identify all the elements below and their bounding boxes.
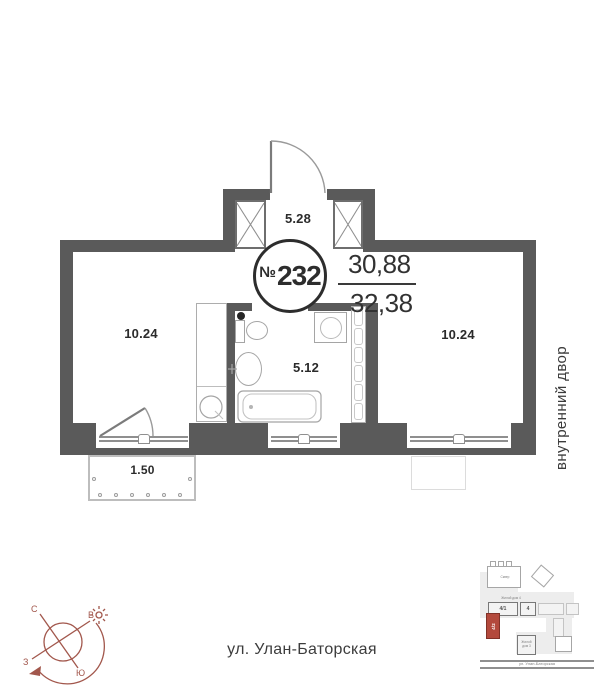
minimap-highlight-block: 4/2 — [486, 613, 500, 639]
unit-number-badge: № 232 — [253, 239, 327, 313]
wall-bottom-2 — [189, 423, 268, 455]
balcony-door-leaf-icon — [100, 408, 145, 436]
bathtub-drain-icon — [249, 405, 253, 409]
railing-dot — [146, 493, 150, 497]
pipe-riser-icon — [237, 312, 245, 320]
wall-bottom-3 — [340, 423, 407, 455]
living-area-value: 30,88 — [338, 249, 417, 283]
minimap-building-unit — [498, 561, 504, 567]
wall-bottom-4 — [511, 423, 536, 455]
railing-dot — [92, 477, 96, 481]
vent-shaft-cross-icon — [335, 202, 361, 247]
kitchen-counter — [196, 303, 227, 422]
wall-under-window-left — [96, 448, 189, 455]
window-middle — [271, 436, 337, 442]
shelf-segment — [354, 328, 363, 345]
compass-arrowhead-icon — [29, 666, 41, 676]
unit-number: 232 — [277, 260, 321, 292]
courtyard-label: внутренний двор — [553, 328, 573, 488]
minimap-block-faint — [538, 603, 564, 615]
shelf-segment — [354, 384, 363, 401]
compass-south-label: Ю — [76, 668, 85, 678]
minimap-block-faint — [566, 603, 579, 615]
railing-dot — [162, 493, 166, 497]
counter-divider — [197, 386, 226, 387]
window-handle-icon — [298, 434, 310, 444]
vent-shaft-cross-icon — [237, 202, 264, 247]
washing-machine-drum-icon — [320, 317, 342, 339]
compass-rose: С В З Ю — [15, 582, 120, 687]
bathroom-area-label: 5.12 — [281, 360, 331, 375]
hall-area-label: 5.28 — [268, 211, 328, 226]
vent-shaft-right — [333, 200, 363, 249]
minimap-house3-block: Жилой дом 3 — [517, 635, 536, 655]
minimap-block-4: 4 — [520, 602, 536, 616]
minimap-building-unit — [506, 561, 512, 567]
railing-dot — [188, 477, 192, 481]
window-right — [410, 436, 508, 442]
toilet-bowl-icon — [246, 321, 268, 340]
toilet-tank-icon — [235, 320, 245, 343]
minimap-block-faint — [553, 618, 564, 637]
minimap-house3-line2: дом 3 — [522, 645, 530, 649]
minimap-park-label: Сквер — [490, 576, 520, 580]
room-right-area-label: 10.24 — [428, 327, 488, 342]
total-area-value: 32,38 — [338, 285, 417, 319]
compass-west-label: З — [23, 657, 28, 667]
vent-shaft-left — [235, 200, 266, 249]
railing-dot — [130, 493, 134, 497]
sun-icon — [96, 612, 102, 618]
window-handle-icon — [138, 434, 150, 444]
minimap-building-unit — [490, 561, 496, 567]
railing-dot — [98, 493, 102, 497]
wall-bathroom-right — [366, 303, 378, 423]
exterior-pad — [411, 456, 466, 490]
minimap-block-corner — [555, 636, 572, 652]
shelf-segment — [354, 403, 363, 420]
window-left — [99, 436, 188, 442]
wall-bottom-1 — [60, 423, 96, 455]
railing-dot — [178, 493, 182, 497]
window-handle-icon — [453, 434, 465, 444]
street-label: ул. Улан-Баторская — [152, 641, 452, 659]
balcony — [88, 455, 196, 501]
unit-number-prefix: № — [259, 264, 276, 281]
railing-dot — [114, 493, 118, 497]
minimap-highlight-label: 4/2 — [490, 623, 495, 630]
wall-under-window-right — [407, 448, 511, 455]
room-left-area-label: 10.24 — [111, 326, 171, 341]
balcony-door-arc-icon — [145, 408, 153, 436]
minimap-row-label: Жилой дом 4 — [486, 597, 536, 601]
minimap-street-line — [480, 667, 594, 669]
shelf-unit — [351, 306, 366, 423]
shelf-segment — [354, 365, 363, 382]
wall-bathroom-top-left — [227, 303, 252, 311]
entry-door-arc-icon — [271, 141, 325, 193]
compass-north-label: С — [31, 604, 38, 614]
wall-under-window-middle — [268, 448, 340, 455]
balcony-area-label: 1.50 — [120, 463, 165, 477]
area-figures: 30,88 32,38 — [338, 249, 417, 319]
bathroom-sink-icon — [235, 352, 262, 386]
shelf-segment — [354, 347, 363, 364]
bathtub-inner-icon — [243, 394, 316, 419]
compass-east-label: В — [88, 610, 94, 620]
wall-top-left — [60, 240, 235, 252]
site-minimap: Сквер Жилой дом 4 4/1 4 4/2 Жилой дом 3 … — [478, 556, 596, 674]
floor-plan-page: № 232 30,88 32,38 5.28 10.24 5.12 10.24 … — [0, 0, 600, 700]
wall-bathroom-left — [227, 303, 235, 423]
minimap-building-rotated — [531, 564, 554, 587]
bathtub-icon — [238, 391, 321, 422]
